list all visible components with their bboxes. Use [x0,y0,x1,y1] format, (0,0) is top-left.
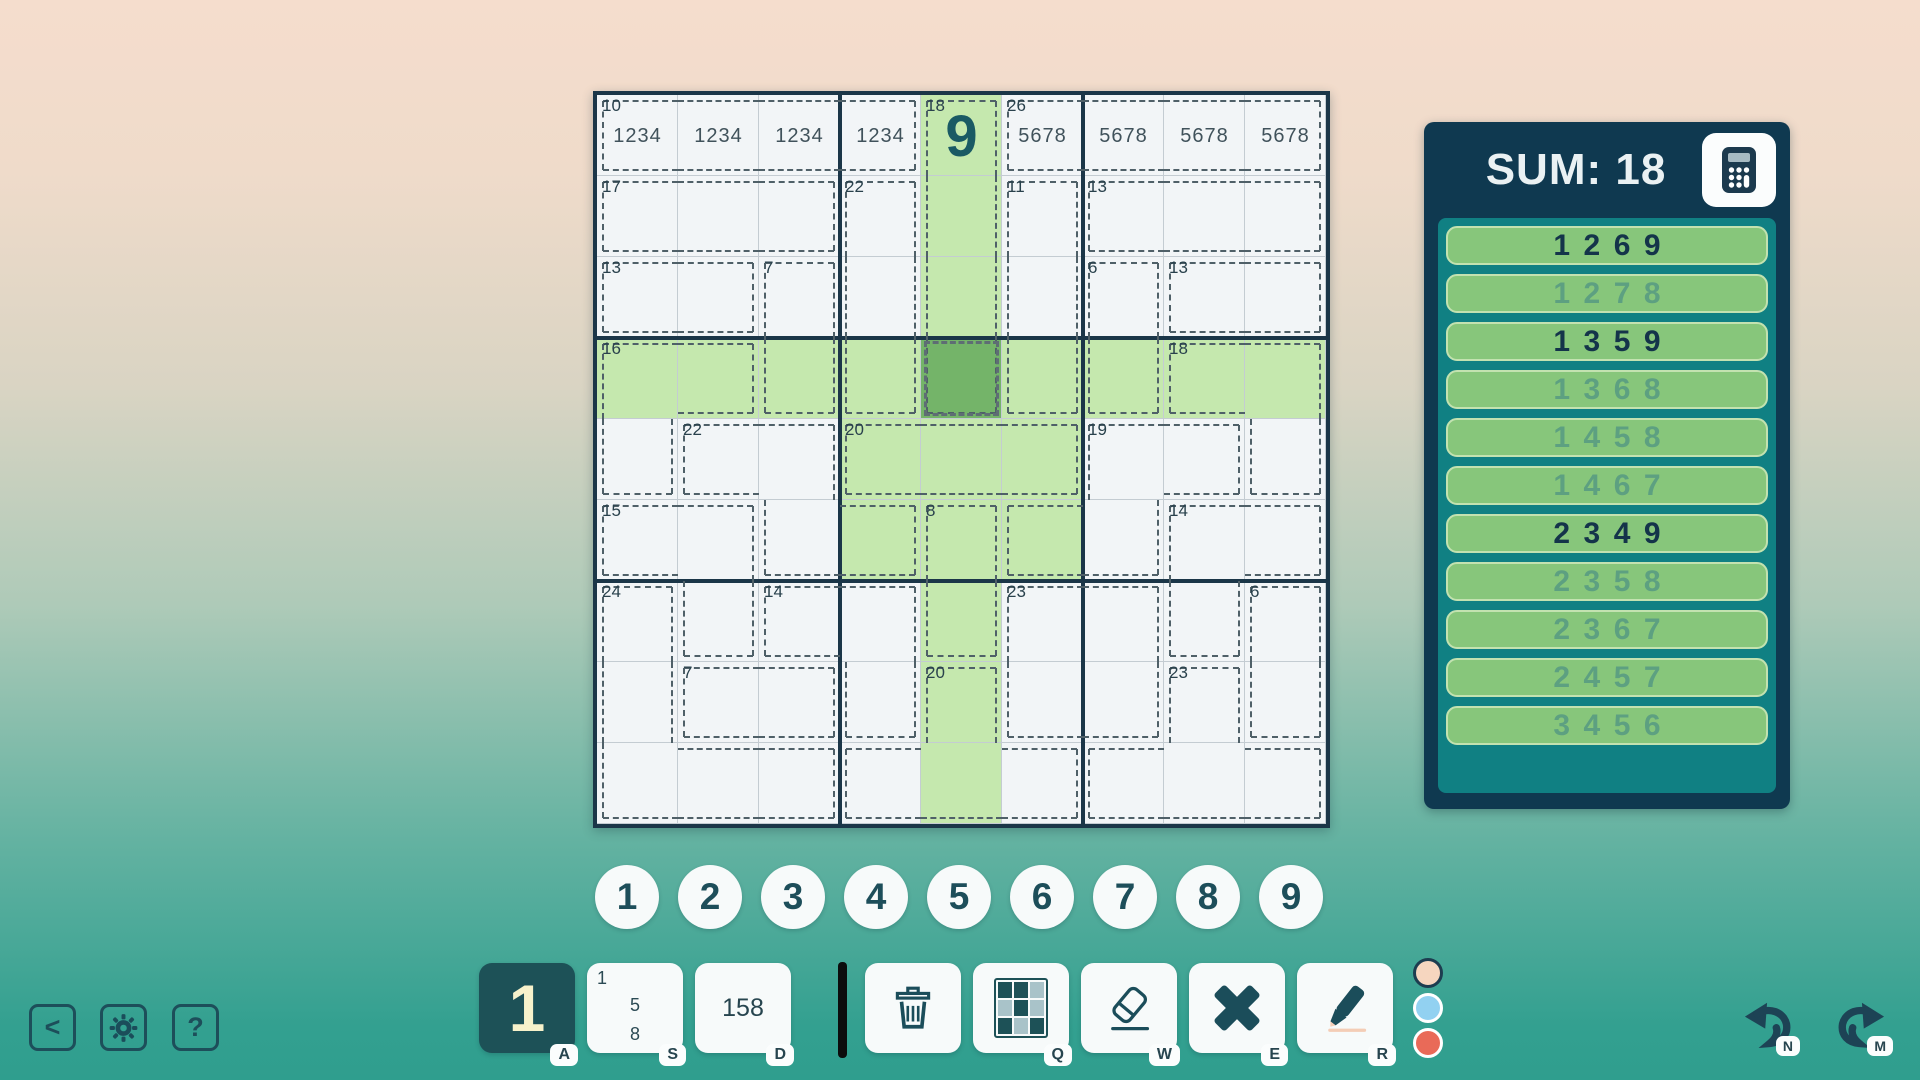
cage-border [1089,250,1164,252]
corner-mark-sample: 5 [587,995,683,1016]
cage-sum-label: 7 [683,663,692,683]
calculator-icon [1719,145,1759,195]
cage-border [1164,250,1245,252]
cage-border [995,668,997,743]
shortcut-badge-m: M [1867,1036,1893,1056]
cage-border [678,412,753,414]
cage-border [603,331,678,333]
eraser-button[interactable]: W [1081,963,1177,1053]
cell-r6c4[interactable] [840,500,921,581]
sum-combination-1278[interactable]: 1278 [1446,274,1768,313]
sum-combination-1359[interactable]: 1359 [1446,322,1768,361]
mode-corner-button[interactable]: 1 5 8 S [587,963,683,1053]
cage-border [759,250,834,252]
cage-border [926,581,928,656]
cage-border [846,493,921,495]
cage-border [1164,100,1245,102]
calculator-button[interactable] [1702,133,1776,207]
cell-r9c2[interactable] [678,743,759,824]
shortcut-badge-d: D [766,1044,794,1066]
cage-border [914,587,916,662]
shortcut-badge-q: Q [1044,1044,1072,1066]
cage-border [921,817,1002,819]
cage-border [1088,749,1090,818]
cell-r7c5[interactable] [921,581,1002,662]
cell-r8c9[interactable] [1245,662,1326,743]
color-grid-icon [973,963,1069,1053]
cage-border [678,817,759,819]
cage-border [1008,505,1083,507]
cage-border [1245,343,1320,345]
cell-r7c4[interactable] [840,581,921,662]
cell-r4c3[interactable] [759,338,840,419]
cage-border [1245,817,1320,819]
cell-r6c9[interactable] [1245,500,1326,581]
cage-border [765,655,840,657]
sum-helper-panel: SUM: 18 12691278135913681458146723492358… [1424,122,1790,809]
cage-sum-label: 24 [602,582,621,602]
cell-r8c7[interactable] [1083,662,1164,743]
cage-border [1076,257,1078,338]
cage-border [1008,169,1083,171]
cage-border [1002,493,1077,495]
cage-sum-label: 14 [764,582,783,602]
cage-border [759,736,834,738]
digit-button-8[interactable]: 8 [1176,865,1240,929]
digit-button-3[interactable]: 3 [761,865,825,929]
cage-border [1002,748,1077,750]
cell-r2c5[interactable] [921,176,1002,257]
cage-border [840,586,915,588]
cage-border [678,181,759,183]
cage-sum-label: 20 [926,663,945,683]
cage-border [683,581,685,656]
cell-r9c8[interactable] [1164,743,1245,824]
cage-border [845,749,847,818]
cage-border [1157,587,1159,662]
cage-sum-label: 6 [1088,258,1097,278]
cage-border [840,574,915,576]
cell-r2c3[interactable] [759,176,840,257]
undo-button[interactable]: N [1744,1000,1792,1048]
cage-border [1083,169,1164,171]
cage-border [678,169,759,171]
cage-sum-label: 20 [845,420,864,440]
digit-button-9[interactable]: 9 [1259,865,1323,929]
cage-border [602,662,604,743]
cage-border [1245,100,1320,102]
cage-border [678,331,753,333]
cage-border [765,412,834,414]
cage-border [1238,425,1240,494]
cage-border [840,169,915,171]
cage-border [1083,100,1164,102]
cage-border [1089,412,1158,414]
cage-border [671,587,673,662]
cage-border [1089,262,1158,264]
shortcut-badge-a: A [550,1044,578,1066]
cage-border [1170,655,1239,657]
cell-r6c3[interactable] [759,500,840,581]
sum-combination-1368[interactable]: 1368 [1446,370,1768,409]
cell-r2c2[interactable] [678,176,759,257]
cage-border [921,424,1002,426]
cage-border [684,667,759,669]
cage-border [926,176,928,257]
mode-center-button[interactable]: 158 D [695,963,791,1053]
cage-border [1088,338,1090,413]
cage-border [833,263,835,338]
shortcut-badge-r: R [1368,1044,1396,1066]
sum-panel-header: SUM: 18 [1424,122,1790,218]
cage-border [914,257,916,338]
cage-border [1083,586,1158,588]
cage-border [678,343,753,345]
cage-border [1319,749,1321,818]
cage-border [764,500,766,575]
digit-button-4[interactable]: 4 [844,865,908,929]
cell-r9c5[interactable] [921,743,1002,824]
cage-border [995,176,997,257]
mode-normal-button[interactable]: 1 A [479,963,575,1053]
mode-normal-label: 1 [479,963,575,1053]
box-border [597,336,1326,340]
cage-border [759,169,840,171]
cage-sum-label: 8 [926,501,935,521]
trash-icon [865,963,961,1053]
cage-border [1089,817,1164,819]
cell-r5c3[interactable] [759,419,840,500]
cage-border [995,506,997,581]
cage-sum-label: 16 [602,339,621,359]
cage-border [1007,506,1009,575]
pen-button[interactable]: R [1297,963,1393,1053]
center-marks: 1234 [597,125,678,148]
sum-combination-2457[interactable]: 2457 [1446,658,1768,697]
cage-border [845,338,847,413]
cage-border [1238,668,1240,743]
cage-border [840,505,915,507]
cell-r2c8[interactable] [1164,176,1245,257]
cell-r4c7[interactable] [1083,338,1164,419]
cage-border [678,505,753,507]
palette-dot-1[interactable] [1413,958,1443,988]
cage-sum-label: 7 [764,258,773,278]
help-icon: ? [187,1012,204,1043]
cage-sum-label: 19 [1088,420,1107,440]
cell-r5c6[interactable] [1002,419,1083,500]
cage-border [846,817,921,819]
cage-border [1245,748,1320,750]
cage-sum-label: 23 [1007,582,1026,602]
cell-r9c9[interactable] [1245,743,1326,824]
cage-sum-label: 18 [1169,339,1188,359]
digit-button-7[interactable]: 7 [1093,865,1157,929]
cell-r5c1[interactable] [597,419,678,500]
cage-border [914,338,916,413]
cage-sum-label: 6 [1250,582,1259,602]
cage-border [995,581,997,656]
cage-border [603,493,672,495]
cage-border [846,412,915,414]
center-marks: 5678 [1245,125,1326,148]
combination-list: 1269127813591368145814672349235823672457… [1438,218,1776,793]
color-palette-button[interactable]: Q [973,963,1069,1053]
cage-border [678,250,759,252]
cage-border [833,749,835,818]
cage-sum-label: 13 [1088,177,1107,197]
cage-border [764,338,766,413]
center-marks: 5678 [1083,125,1164,148]
cell-r7c2[interactable] [678,581,759,662]
cell-r9c3[interactable] [759,743,840,824]
cage-sum-label: 26 [1007,96,1026,116]
cage-border [1319,662,1321,737]
cage-border [1089,748,1164,750]
cage-border [1164,493,1239,495]
cage-border [759,181,834,183]
cell-r8c6[interactable] [1002,662,1083,743]
cell-r3c6[interactable] [1002,257,1083,338]
cage-border [833,338,835,413]
toolbar-separator [838,962,847,1058]
cage-border [1251,493,1320,495]
cage-border [752,506,754,581]
cage-border [1245,262,1320,264]
clear-cross-button[interactable]: E [1189,963,1285,1053]
cage-border [678,748,759,750]
redo-button[interactable]: M [1837,1000,1885,1048]
cell-r4c4[interactable] [840,338,921,419]
cell-r3c2[interactable] [678,257,759,338]
sum-title: SUM: 18 [1424,145,1702,195]
cage-border [759,667,834,669]
cage-border [765,262,834,264]
cage-border [1245,574,1320,576]
cell-r3c5[interactable] [921,257,1002,338]
cage-border [995,257,997,338]
cage-border [1083,574,1158,576]
cage-border [1164,169,1245,171]
cage-border [1169,581,1171,656]
cage-border [684,736,759,738]
cage-border [914,182,916,257]
corner-mark-sample: 1 [597,968,607,989]
cage-border [1170,331,1245,333]
cell-r9c7[interactable] [1083,743,1164,824]
sudoku-board: 1018261722111313761316182220191581424142… [593,91,1330,828]
cage-sum-label: 15 [602,501,621,521]
cell-r6c7[interactable] [1083,500,1164,581]
cage-border [1245,505,1320,507]
sum-combination-3456[interactable]: 3456 [1446,706,1768,745]
cell-r5c8[interactable] [1164,419,1245,500]
cell-r8c4[interactable] [840,662,921,743]
center-marks: 1234 [678,125,759,148]
cell-r9c4[interactable] [840,743,921,824]
delete-button[interactable] [865,963,961,1053]
cage-border [1245,169,1320,171]
box-border [838,95,842,824]
cage-border [759,817,834,819]
cage-border [678,100,759,102]
cage-border [1076,425,1078,494]
cage-border [927,505,996,507]
cage-sum-label: 23 [1169,663,1188,683]
cage-border [1002,817,1077,819]
cage-border [678,262,753,264]
palette-dot-2[interactable] [1413,993,1443,1023]
cage-border [846,736,915,738]
cage-border [1170,412,1245,414]
cage-border [1319,344,1321,419]
settings-button[interactable] [100,1004,147,1051]
cell-r2c9[interactable] [1245,176,1326,257]
shortcut-badge-s: S [659,1044,686,1066]
box-border [597,579,1326,583]
cage-border [1319,506,1321,575]
cage-border [1008,412,1077,414]
eraser-icon [1081,963,1177,1053]
cross-icon [1189,963,1285,1053]
cage-border [1319,419,1321,494]
cell-r8c1[interactable] [597,662,678,743]
cage-border [1007,662,1009,737]
selection-cursor [924,341,999,416]
cage-border [1157,338,1159,413]
cage-border [752,581,754,656]
help-button[interactable]: ? [172,1004,219,1051]
digit-button-2[interactable]: 2 [678,865,742,929]
shortcut-badge-w: W [1149,1044,1180,1066]
cage-sum-label: 13 [602,258,621,278]
cage-border [1007,338,1009,413]
cage-border [759,424,834,426]
sum-combination-2367[interactable]: 2367 [1446,610,1768,649]
cell-r5c9[interactable] [1245,419,1326,500]
cage-border [1251,736,1320,738]
cage-border [759,100,840,102]
cell-r4c2[interactable] [678,338,759,419]
cage-border [1164,424,1239,426]
cell-r7c7[interactable] [1083,581,1164,662]
cage-border [1250,419,1252,494]
shortcut-badge-n: N [1776,1036,1800,1056]
digit-button-6[interactable]: 6 [1010,865,1074,929]
cage-sum-label: 22 [845,177,864,197]
digit-button-5[interactable]: 5 [927,865,991,929]
cage-border [1319,263,1321,332]
cage-border [845,257,847,338]
cell-r6c6[interactable] [1002,500,1083,581]
cage-border [1008,574,1083,576]
cage-border [603,574,678,576]
palette-dot-3[interactable] [1413,1028,1443,1058]
cage-sum-label: 10 [602,96,621,116]
cage-border [1157,263,1159,338]
cage-border [914,662,916,737]
cage-border [1245,331,1320,333]
box-border [1081,95,1085,824]
cage-border [845,662,847,737]
digit-button-1[interactable]: 1 [595,865,659,929]
cage-sum-label: 22 [683,420,702,440]
cell-r5c5[interactable] [921,419,1002,500]
cage-border [684,493,759,495]
cage-border [1238,581,1240,656]
cage-border [1002,424,1077,426]
cage-border [1251,586,1320,588]
cage-border [914,506,916,575]
cell-r9c6[interactable] [1002,743,1083,824]
cage-border [1157,662,1159,737]
sum-combination-2358[interactable]: 2358 [1446,562,1768,601]
cell-r6c2[interactable] [678,500,759,581]
cell-r7c8[interactable] [1164,581,1245,662]
cage-border [1164,181,1245,183]
cage-sum-label: 11 [1007,177,1025,197]
pen-icon [1297,963,1393,1053]
cage-border [1076,182,1078,257]
cage-border [926,257,928,338]
cage-border [603,817,678,819]
cage-border [1250,662,1252,737]
gear-icon [109,1008,138,1048]
sum-combination-1269[interactable]: 1269 [1446,226,1768,265]
cage-border [752,263,754,332]
center-marks: 5678 [1002,125,1083,148]
cage-border [927,655,996,657]
cage-border [1245,250,1320,252]
center-marks: 1234 [759,125,840,148]
cell-r9c1[interactable] [597,743,678,824]
cell-r4c9[interactable] [1245,338,1326,419]
cell-r3c4[interactable] [840,257,921,338]
cage-border [684,655,753,657]
cage-border [602,743,604,818]
center-marks: 5678 [1164,125,1245,148]
sum-combination-2349[interactable]: 2349 [1446,514,1768,553]
cage-border [1076,338,1078,413]
center-marks: 1234 [840,125,921,148]
cage-border [1007,257,1009,338]
cell-r3c9[interactable] [1245,257,1326,338]
corner-mark-sample: 8 [587,1024,683,1045]
sum-combination-1458[interactable]: 1458 [1446,418,1768,457]
cage-border [921,493,1002,495]
app-background: 1018261722111313761316182220191581424142… [0,0,1920,1080]
cage-border [671,662,673,743]
cell-r4c6[interactable] [1002,338,1083,419]
cage-border [1083,736,1158,738]
cage-sum-label: 17 [602,177,621,197]
cage-border [759,748,834,750]
center-mark-sample: 158 [695,963,791,1053]
cage-border [1164,817,1245,819]
cage-border [1157,500,1159,575]
cage-border [765,574,840,576]
cage-border [1008,736,1083,738]
sum-combination-1467[interactable]: 1467 [1446,466,1768,505]
cage-border [1076,749,1078,818]
cell-r8c3[interactable] [759,662,840,743]
back-button[interactable]: < [29,1004,76,1051]
shortcut-badge-e: E [1261,1044,1288,1066]
cage-border [833,668,835,737]
cage-sum-label: 13 [1169,258,1188,278]
cage-border [603,169,678,171]
cage-border [840,100,915,102]
